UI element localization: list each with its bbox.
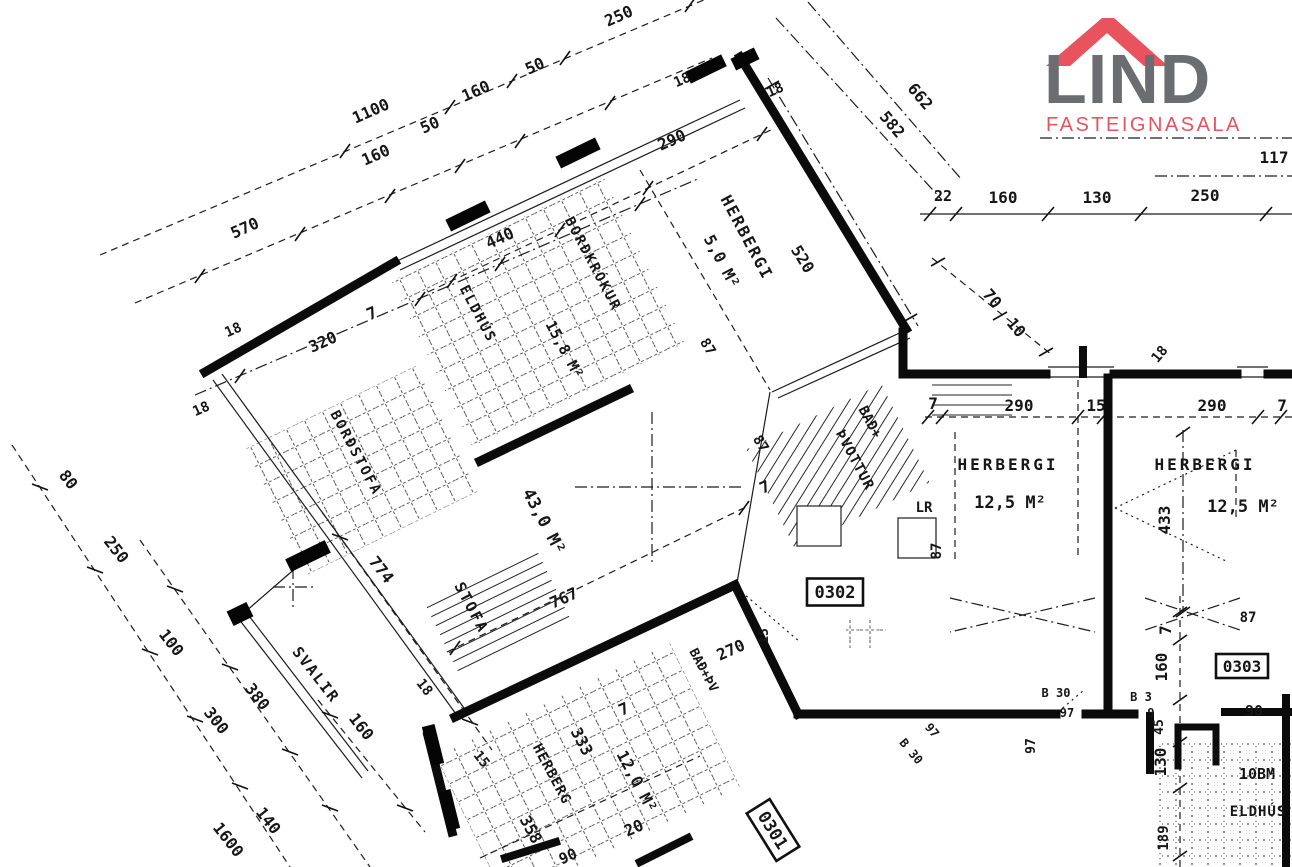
dim-label: 97 [1060,706,1074,720]
dim-label: 70 [979,285,1006,312]
logo-name: LIND [1044,44,1211,114]
dim-label: 290 [1005,396,1034,415]
unit-number: 0303 [1223,657,1262,676]
dim-label: 100 [155,625,188,659]
dim-label: 97 [1024,738,1039,754]
label-10bm: 10BM [1239,765,1275,783]
area-label-herbergi-left: 12,5 M² [974,493,1046,513]
unit-box-0302: 0302 [807,579,863,606]
dim-label: 380 [241,679,274,713]
dim-label: 9 [1147,706,1154,720]
area-label-herbergi-5: 5,0 M² [700,231,744,291]
dim-label: 433 [1155,506,1174,535]
lind-logo: LIND FASTEIGNASALA [1044,14,1276,142]
dim-label: 22 [934,187,952,205]
dim-label: 18 [190,399,212,420]
dim-label: 250 [100,532,133,566]
unit-box-0301: 0301 [747,799,800,861]
small-rows-hatch [932,382,1012,418]
dim-label: B 30 [1042,686,1071,700]
dim-label: 130 [1083,188,1112,207]
dim-label: 300 [200,703,233,737]
dim-label: 160 [359,140,393,169]
dim-label: 270 [714,635,748,664]
dim-label: 290 [1198,396,1227,415]
dim-label: 250 [1191,186,1220,205]
dim-label: 290 [655,125,689,154]
dim-label: 18 [222,320,244,341]
floorplan-page: 0302 0303 0301 HERBERGI5,0 M²BORÐKRÓKURE… [0,0,1292,867]
dim-label: 15 [757,628,772,644]
room-label-eldhus-neighbor: ELDHÚS [1230,802,1287,820]
dim-label: 87 [696,335,719,358]
dim-label: 18 [1148,343,1171,366]
dim-label: 160 [1152,653,1171,682]
dim-label: B 3 [1130,690,1152,704]
dim-label: B 30 [896,736,925,767]
small-hatch [846,620,886,648]
dim-label: 97 [922,720,942,740]
dim-label: 520 [787,242,818,277]
logo-subtitle: FASTEIGNASALA [1046,114,1242,137]
dim-label: 160 [459,76,493,105]
dim-label: 662 [904,79,937,113]
label-lr: LR [916,500,933,516]
dim-label: 130 [1151,748,1170,777]
stofa-rows-hatch [424,547,572,677]
dim-label: 80 [55,466,82,493]
dim-label: 87 [929,543,945,560]
dim-label: 1100 [349,94,392,127]
dim-label: 15 [1086,396,1105,415]
room-label-herbergi-right: HERBERGI [1154,455,1255,474]
dim-label: 90 [1245,702,1263,720]
dim-label: 320 [306,327,340,356]
dim-label: 45 [1152,719,1167,735]
dim-label: 189 [1156,825,1172,850]
dim-label: 117 [1260,148,1289,167]
dim-label: 87 [1240,610,1257,626]
dim-label: 1600 [209,819,248,861]
dim-label: 250 [602,1,636,30]
area-label-herbergi-right: 12,5 M² [1207,497,1279,517]
dim-label: 160 [989,188,1018,207]
dim-label: 7 [1156,625,1175,635]
dim-label: 10 [1003,314,1030,341]
dim-label: 50 [417,112,442,137]
dim-label: 7 [928,394,938,413]
unit-box-0303: 0303 [1216,654,1268,678]
dim-label: 7 [363,302,380,323]
area-label-stofa: 43,0 M² [518,485,569,558]
unit-number: 0302 [815,583,856,603]
dim-label: 140 [252,803,285,837]
dim-label: 774 [365,552,398,586]
bath-fixture [797,506,841,546]
dim-label: 7 [1277,396,1287,415]
room-label-herbergi-left: HERBERGI [957,455,1058,474]
room-label-svalir: SVALIR [288,643,343,706]
hatch-regions [246,178,1292,867]
dim-label: 582 [876,107,909,141]
dim-label: 570 [228,213,262,242]
dim-label: 18 [413,676,436,699]
